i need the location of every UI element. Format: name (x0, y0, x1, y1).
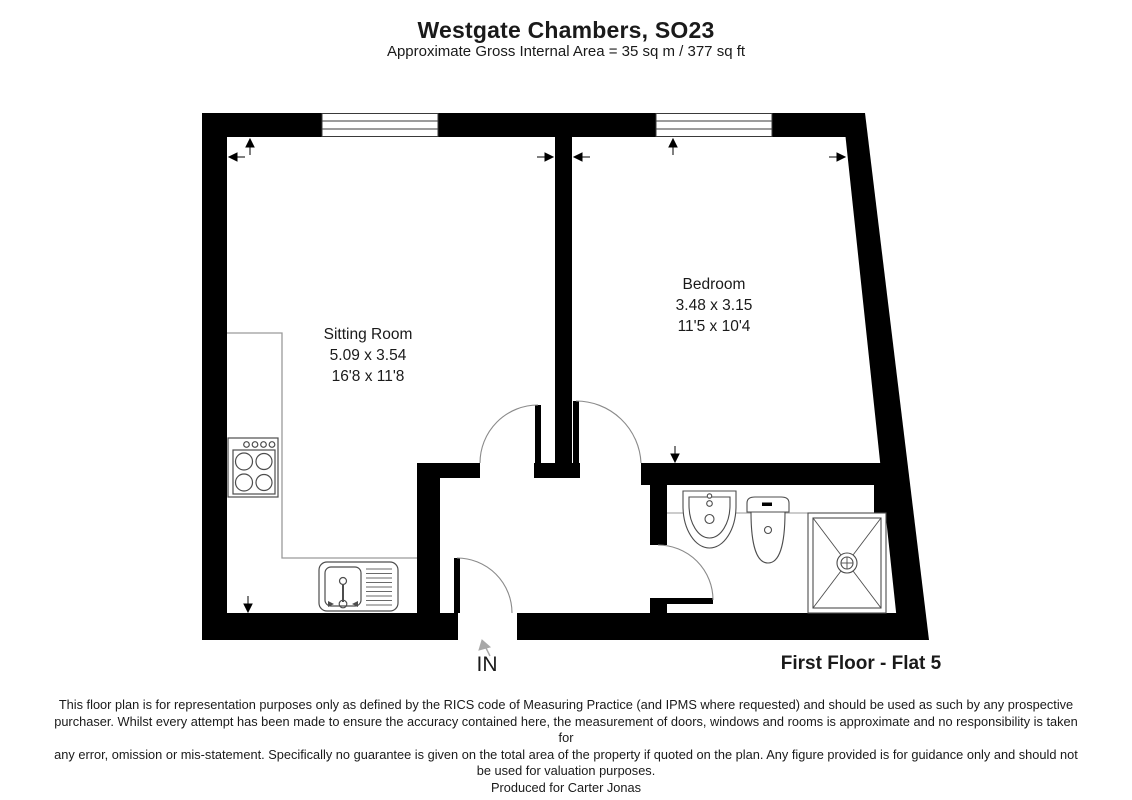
wall-divider-foot (534, 463, 580, 478)
basin-icon (683, 491, 736, 548)
bedroom-door-leaf (573, 401, 579, 463)
room-name: Sitting Room (324, 324, 413, 345)
room-size-metric: 3.48 x 3.15 (676, 295, 753, 316)
door-arc-icon (576, 401, 641, 463)
wall-interior-divider (555, 137, 572, 463)
disclaimer-line: purchaser. Whilst every attempt has been… (46, 714, 1086, 747)
bedroom-label: Bedroom 3.48 x 3.15 11'5 x 10'4 (676, 274, 753, 337)
wall-bottom (202, 613, 929, 640)
entrance-opening (458, 612, 517, 641)
shower-icon (808, 513, 886, 613)
entrance-label: IN (477, 653, 498, 677)
disclaimer: This floor plan is for representation pu… (46, 697, 1086, 797)
doors (454, 401, 713, 613)
room-size-imperial: 16'8 x 11'8 (324, 366, 413, 387)
toilet-icon (747, 497, 789, 563)
wall-hall-left (417, 463, 440, 614)
disclaimer-credit: Produced for Carter Jonas (46, 780, 1086, 797)
wall-bathroom-corner (874, 485, 900, 513)
door-arc-icon (457, 558, 512, 613)
wall-bathroom-left-stub (650, 598, 667, 614)
sitting-room-door-leaf (535, 405, 541, 463)
wall-bathroom-left (650, 463, 667, 545)
hob-icon (228, 438, 278, 497)
floor-label: First Floor - Flat 5 (781, 653, 941, 675)
wall-left (202, 113, 227, 640)
disclaimer-line: be used for valuation purposes. (46, 763, 1086, 780)
room-size-imperial: 11'5 x 10'4 (676, 316, 753, 337)
page-title: Westgate Chambers, SO23 (418, 17, 715, 44)
kitchen-sink-icon (319, 562, 398, 611)
bathroom-door-leaf (667, 598, 713, 604)
wall-bathroom-top (641, 463, 886, 485)
room-size-metric: 5.09 x 3.54 (324, 345, 413, 366)
page-subtitle: Approximate Gross Internal Area = 35 sq … (387, 43, 745, 60)
sitting-room-label: Sitting Room 5.09 x 3.54 16'8 x 11'8 (324, 324, 413, 387)
room-name: Bedroom (676, 274, 753, 295)
disclaimer-line: This floor plan is for representation pu… (46, 697, 1086, 714)
door-arc-icon (658, 545, 713, 600)
disclaimer-line: any error, omission or mis-statement. Sp… (46, 747, 1086, 764)
floor-plan (0, 0, 1132, 800)
entrance-door-leaf (454, 558, 460, 613)
walls (202, 113, 929, 640)
door-arc-icon (480, 405, 538, 463)
